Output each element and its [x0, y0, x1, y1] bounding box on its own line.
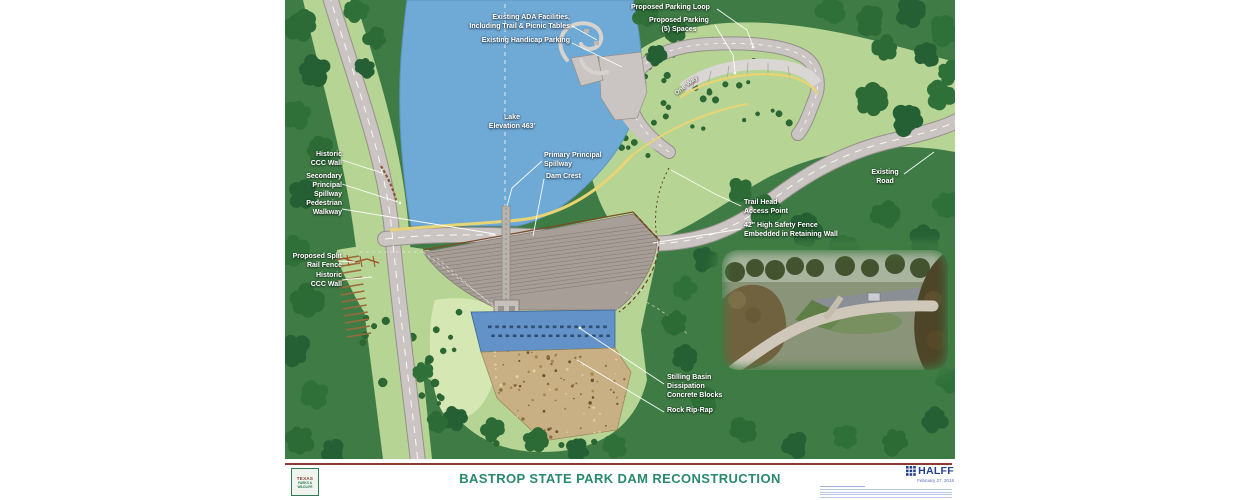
map-canvas — [285, 0, 955, 459]
plan-date: February 27, 2018 — [898, 478, 954, 483]
inset-photo — [719, 247, 951, 373]
halff-name: HALFF — [918, 465, 954, 477]
halff-grid-icon — [906, 466, 916, 476]
fine-print — [820, 486, 952, 500]
halff-logo-block: HALFF February 27, 2018 — [898, 465, 954, 483]
page: Existing ADA Facilities, Including Trail… — [0, 0, 1235, 500]
picnic-table — [594, 41, 599, 45]
site-plan-map: Existing ADA Facilities, Including Trail… — [285, 0, 955, 459]
page-title: BASTROP STATE PARK DAM RECONSTRUCTION — [285, 471, 955, 486]
stilling-basin — [471, 310, 615, 352]
picnic-table — [584, 29, 589, 33]
footer-rule — [285, 463, 952, 465]
